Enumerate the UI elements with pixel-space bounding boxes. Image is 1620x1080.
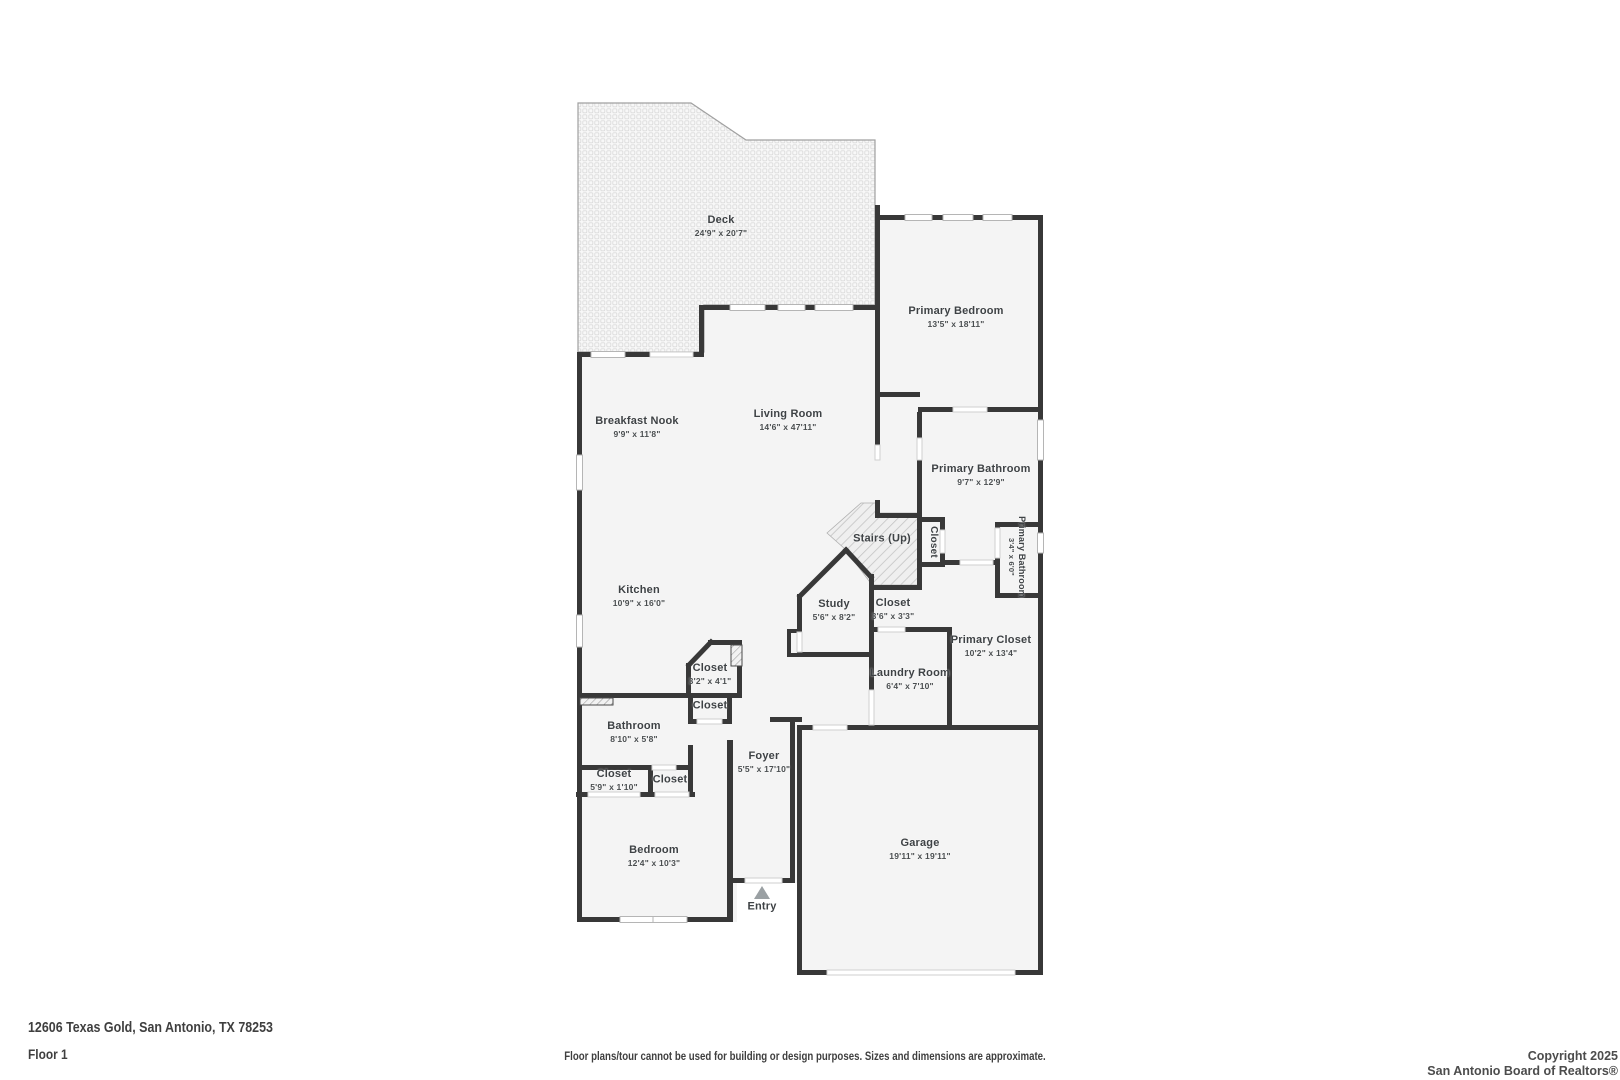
- address-text: 12606 Texas Gold, San Antonio, TX 78253: [28, 1019, 273, 1036]
- room-label-kitchen: Kitchen 10'9" x 16'0": [613, 584, 666, 608]
- room-label-primary-bathroom-wc: Primary Bathroom 3'4" x 6'0": [1007, 516, 1027, 598]
- room-label-closet-d: Closet: [653, 774, 688, 787]
- room-label-closet-c: Closet 5'9" x 1'10": [590, 768, 638, 792]
- room-label-bedroom: Bedroom 12'4" x 10'3": [628, 844, 681, 868]
- entry-arrow-icon: [754, 886, 770, 899]
- room-label-primary-bathroom: Primary Bathroom 9'7" x 12'9": [931, 463, 1030, 487]
- copyright-line2: San Antonio Board of Realtors®: [1427, 1064, 1618, 1079]
- room-label-laundry-room: Laundry Room 6'4" x 7'10": [870, 667, 950, 691]
- room-label-closet-b: Closet: [693, 700, 728, 713]
- room-label-deck: Deck 24'9" x 20'7": [695, 214, 748, 238]
- room-label-living-room: Living Room 14'6" x 47'11": [754, 408, 823, 432]
- room-label-entry: Entry: [747, 901, 776, 914]
- room-label-stairs-up: Stairs (Up): [853, 533, 911, 546]
- room-label-garage: Garage 19'11" x 19'11": [889, 837, 950, 861]
- room-label-primary-bedroom: Primary Bedroom 13'5" x 18'11": [908, 305, 1003, 329]
- room-label-study: Study 5'6" x 8'2": [813, 598, 856, 622]
- room-label-closet-hall: Closet 3'6" x 3'3": [872, 597, 915, 621]
- room-label-primary-closet: Primary Closet 10'2" x 13'4": [951, 634, 1031, 658]
- disclaimer-text: Floor plans/tour cannot be used for buil…: [564, 1051, 1045, 1063]
- room-label-closet-stairs: Closet: [927, 526, 939, 558]
- floor-plan-drawing: [0, 0, 1620, 1080]
- floor-label: Floor 1: [28, 1046, 68, 1062]
- room-label-breakfast-nook: Breakfast Nook 9'9" x 11'8": [595, 415, 679, 439]
- room-label-bathroom: Bathroom 8'10" x 5'8": [607, 720, 661, 744]
- room-label-foyer: Foyer 5'5" x 17'10": [738, 750, 791, 774]
- room-label-closet-a: Closet 3'2" x 4'1": [689, 662, 732, 686]
- copyright-line1: Copyright 2025: [1427, 1049, 1618, 1064]
- copyright-text: Copyright 2025 San Antonio Board of Real…: [1427, 1049, 1618, 1079]
- floor-plan-page: Deck 24'9" x 20'7" Primary Bedroom 13'5"…: [0, 0, 1620, 1080]
